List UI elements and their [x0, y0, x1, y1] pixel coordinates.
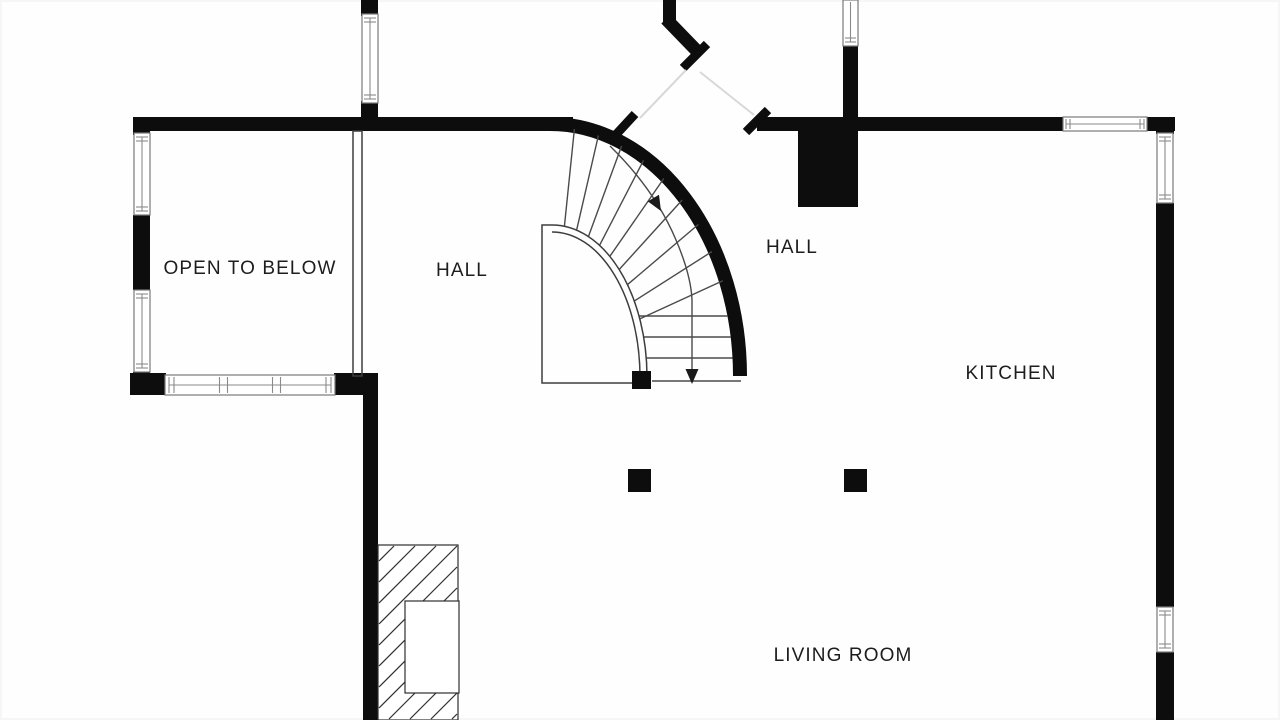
wall-top — [133, 117, 573, 131]
column-left — [628, 469, 651, 492]
stair-direction-arrow-lower — [686, 369, 699, 384]
room-label-open-to-below: OPEN TO BELOW — [163, 258, 336, 280]
windows — [134, 0, 1173, 652]
wall-tee-vertical — [843, 46, 858, 118]
stair-newel-block — [632, 371, 651, 389]
window-right-upper — [1157, 133, 1173, 203]
room-label-hall-left: HALL — [436, 260, 488, 282]
passage-line-left — [640, 70, 686, 118]
columns — [628, 469, 867, 492]
floor-plan-canvas — [0, 0, 1280, 720]
wall-right-mid — [1156, 203, 1174, 607]
window-kitchen-top — [1063, 117, 1147, 131]
wall-left-of-living-room — [363, 384, 378, 720]
exterior-walls — [130, 0, 1175, 720]
window-top-center — [843, 0, 858, 46]
wall-left-corner — [133, 117, 150, 135]
room-label-living-room: LIVING ROOM — [774, 645, 913, 667]
wall-left-mid — [133, 215, 150, 290]
fireplace-firebox — [405, 601, 459, 693]
floor-plan: OPEN TO BELOW HALL HALL KITCHEN LIVING R… — [0, 0, 1280, 720]
chimney-block — [798, 131, 858, 207]
window-top-left — [362, 14, 378, 103]
window-left-lower — [134, 290, 150, 372]
wall-bottom-left-corner — [130, 373, 166, 395]
fireplace — [378, 545, 459, 720]
wall-center-top-diagonal — [666, 19, 696, 50]
wall-kitchen-top — [757, 117, 1063, 131]
room-label-kitchen: KITCHEN — [965, 363, 1056, 385]
stair-walk-line — [610, 146, 692, 373]
partition-railing — [353, 131, 362, 376]
wall-right-bottom — [1156, 652, 1174, 720]
stair-direction-arrow-upper — [648, 195, 661, 211]
wall-right-top-corner — [1156, 117, 1174, 134]
window-right-lower — [1157, 607, 1173, 652]
staircase — [542, 114, 741, 389]
stair-wellhole-inner-line — [552, 232, 640, 377]
passage-opening — [640, 70, 754, 118]
stair-wellhole-outline — [542, 225, 647, 383]
wall-top-left-stub-lower — [361, 101, 378, 119]
stair-outer-curved-wall — [550, 124, 740, 376]
window-left-upper — [134, 133, 150, 215]
window-bottom-triple — [165, 375, 335, 395]
column-right — [844, 469, 867, 492]
room-label-hall-right: HALL — [766, 237, 818, 259]
passage-line-right — [700, 72, 754, 115]
